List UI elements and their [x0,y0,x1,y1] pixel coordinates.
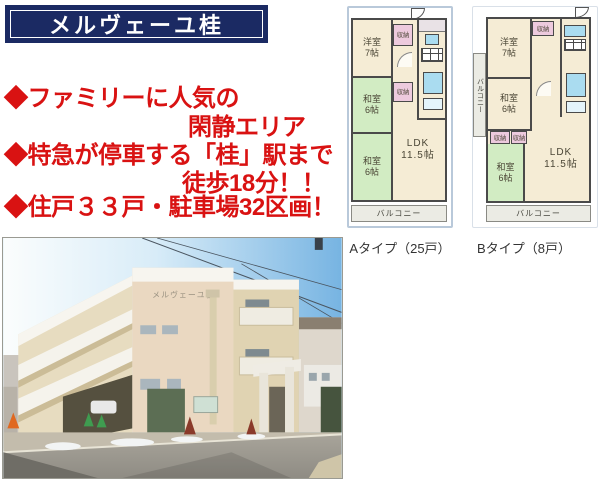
bathroom-fixture [566,73,586,97]
floorplan-b: バルコニー 洋室 7帖 収納 和室 6帖 収納 収納 和室 6帖 [472,6,598,228]
room-tatami-2: 和室 6帖 [353,134,393,200]
power-pole [315,238,323,250]
balcony: バルコニー [486,205,591,222]
flyer-page: メルヴェーユ桂 ◆ファミリーに人気の 閑静エリア ◆特急が停車する「桂」駅まで … [0,0,600,486]
floorplan-a-outline: 洋室 7帖 収納 和室 6帖 収納 和室 6帖 LDK 11.5帖 [351,18,447,202]
parked-car [91,401,117,414]
room-tatami-1: 和室 6帖 [488,79,532,131]
building-sign: メルヴェーユ桂 [152,290,214,300]
shoe-cabinet-fixture [421,48,443,62]
closet: 収納 [532,21,554,36]
toilet-fixture [566,101,586,113]
green-gate [147,389,185,433]
entry-hall [419,20,445,32]
closet: 収納 [393,24,413,46]
wall [417,20,419,120]
room-western: 洋室 7帖 [488,19,532,79]
floorplan-a-caption: Aタイプ（25戸） [347,238,453,257]
door-arc-icon [536,81,551,96]
wall [417,118,445,120]
side-balcony: バルコニー [473,53,486,137]
balcony: バルコニー [351,205,447,222]
wall [560,19,562,117]
page-title: メルヴェーユ桂 [49,8,224,40]
closet: 収納 [393,82,413,102]
floorplan-a: 洋室 7帖 収納 和室 6帖 収納 和室 6帖 LDK 11.5帖 [347,6,453,228]
title-banner: メルヴェーユ桂 [5,5,268,43]
room-ldk: LDK 11.5帖 [534,139,588,179]
bullet-line-5: ◆住戸３３戸・駐車場32区画！ [4,187,335,222]
floorplan-b-outline: 洋室 7帖 収納 和室 6帖 収納 収納 和室 6帖 [486,17,591,203]
floorplan-b-caption: Bタイプ（8戸） [466,238,582,257]
toilet-fixture [423,98,443,110]
washbasin-fixture [425,34,439,45]
room-tatami-1: 和室 6帖 [353,78,393,134]
bathtub-fixture [564,25,586,37]
title-banner-border: メルヴェーユ桂 [10,10,263,38]
room-ldk: LDK 11.5帖 [391,130,445,170]
closet: 収納 [511,131,527,144]
bathtub-fixture [423,72,443,94]
room-tatami-2: 和室 6帖 [488,144,525,201]
building-photo: メルヴェーユ桂 [2,237,343,479]
closet: 収納 [490,131,510,144]
room-western: 洋室 7帖 [353,20,393,78]
building-photo-art: メルヴェーユ桂 [3,238,342,478]
door-arc-icon [397,52,412,67]
washroom-fixture [564,39,586,51]
